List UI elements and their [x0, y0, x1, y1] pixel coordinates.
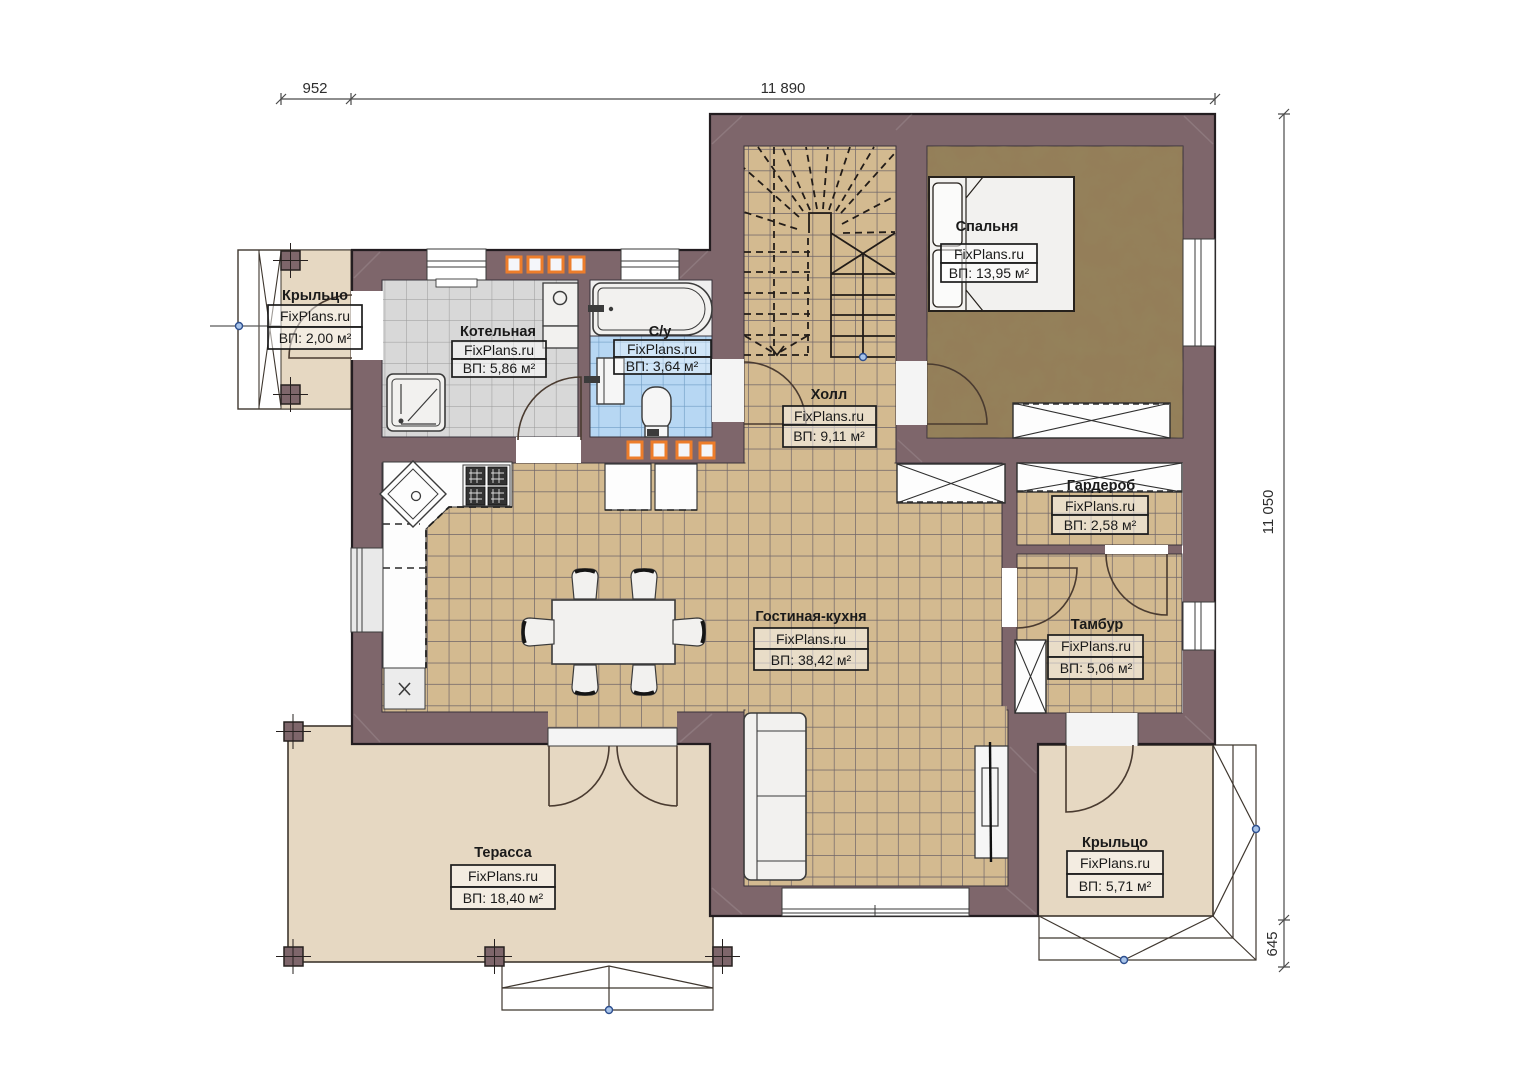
svg-text:Гостиная-кухня: Гостиная-кухня: [755, 609, 866, 625]
svg-text:FixPlans.ru: FixPlans.ru: [468, 868, 538, 884]
svg-text:FixPlans.ru: FixPlans.ru: [776, 631, 846, 647]
svg-text:ВП: 2,58 м²: ВП: 2,58 м²: [1064, 517, 1137, 533]
svg-text:Гардероб: Гардероб: [1067, 478, 1136, 494]
svg-text:FixPlans.ru: FixPlans.ru: [464, 342, 534, 358]
svg-text:ВП: 5,71 м²: ВП: 5,71 м²: [1079, 878, 1152, 894]
svg-text:11 890: 11 890: [761, 80, 806, 97]
svg-text:952: 952: [302, 80, 327, 97]
svg-text:Тамбур: Тамбур: [1071, 617, 1124, 633]
svg-text:FixPlans.ru: FixPlans.ru: [1065, 498, 1135, 514]
svg-text:11 050: 11 050: [1260, 490, 1277, 535]
svg-text:Холл: Холл: [811, 387, 847, 403]
svg-text:FixPlans.ru: FixPlans.ru: [280, 308, 350, 324]
svg-text:ВП: 18,40 м²: ВП: 18,40 м²: [463, 890, 544, 906]
svg-text:ВП: 9,11 м²: ВП: 9,11 м²: [793, 428, 865, 444]
svg-text:645: 645: [1264, 931, 1281, 956]
svg-text:FixPlans.ru: FixPlans.ru: [627, 341, 697, 357]
svg-text:ВП: 3,64 м²: ВП: 3,64 м²: [626, 358, 699, 374]
svg-text:FixPlans.ru: FixPlans.ru: [1061, 638, 1131, 654]
svg-text:FixPlans.ru: FixPlans.ru: [954, 246, 1024, 262]
svg-text:ВП: 13,95 м²: ВП: 13,95 м²: [949, 265, 1030, 281]
svg-text:ВП: 38,42 м²: ВП: 38,42 м²: [771, 652, 852, 668]
svg-text:Терасса: Терасса: [474, 845, 532, 861]
svg-text:ВП: 5,06 м²: ВП: 5,06 м²: [1060, 660, 1133, 676]
svg-text:Котельная: Котельная: [460, 324, 536, 340]
svg-text:Крыльцо: Крыльцо: [1082, 835, 1148, 851]
svg-text:Спальня: Спальня: [956, 219, 1019, 235]
svg-text:ВП: 2,00 м²: ВП: 2,00 м²: [279, 330, 352, 346]
svg-text:ВП: 5,86 м²: ВП: 5,86 м²: [463, 360, 536, 376]
svg-text:FixPlans.ru: FixPlans.ru: [794, 408, 864, 424]
svg-text:Крыльцо: Крыльцо: [282, 288, 348, 304]
svg-text:С/у: С/у: [649, 324, 672, 340]
svg-text:FixPlans.ru: FixPlans.ru: [1080, 855, 1150, 871]
